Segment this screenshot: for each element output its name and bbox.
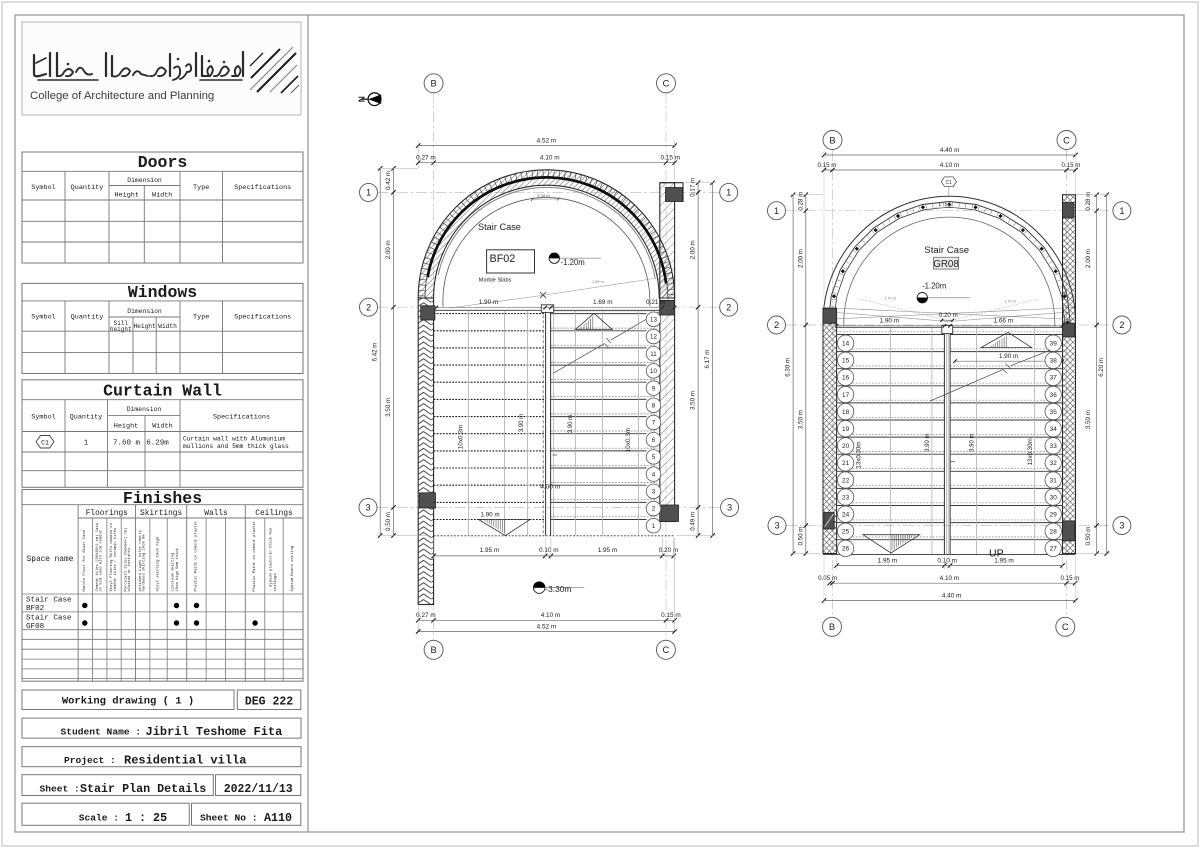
svg-text:0.42 m: 0.42 m <box>385 171 392 190</box>
svg-text:C: C <box>663 644 670 655</box>
svg-text:6.30 m: 6.30 m <box>785 358 792 377</box>
svg-text:Height: Height <box>114 192 138 200</box>
svg-text:37: 37 <box>1050 375 1058 382</box>
svg-text:Stair Case: Stair Case <box>478 222 521 232</box>
svg-text:on 5cm sand with 1cm cement: on 5cm sand with 1cm cement <box>99 530 104 592</box>
svg-text:6.17 m: 6.17 m <box>704 350 711 369</box>
svg-text:-1.20m: -1.20m <box>561 258 585 267</box>
svg-text:Plastic Paint on cement plaste: Plastic Paint on cement plaster <box>252 521 257 592</box>
svg-text:4.10 m: 4.10 m <box>541 612 561 619</box>
svg-text:3.90 m: 3.90 m <box>925 434 931 452</box>
svg-text:3: 3 <box>1119 521 1124 531</box>
svg-text:2: 2 <box>652 506 656 513</box>
svg-text:0.21 m: 0.21 m <box>646 299 666 306</box>
svg-text:0.10 m: 0.10 m <box>937 557 957 564</box>
svg-text:0.15 m: 0.15 m <box>1061 575 1080 582</box>
svg-text:3.90 m: 3.90 m <box>519 414 525 432</box>
svg-text:4.40 m: 4.40 m <box>940 147 960 154</box>
svg-text:3.50 m: 3.50 m <box>1085 410 1092 429</box>
svg-text:4.40 m: 4.40 m <box>942 592 962 599</box>
svg-text:B: B <box>430 78 436 89</box>
svg-text:4.10 m: 4.10 m <box>540 155 560 162</box>
svg-text:-1.20m: -1.20m <box>922 282 946 291</box>
svg-text:Quantity: Quantity <box>71 314 104 322</box>
svg-text:1.70 m: 1.70 m <box>884 297 896 301</box>
svg-text:Curtain wall with Alumunium: Curtain wall with Alumunium <box>183 436 285 443</box>
svg-text:0.10 m: 0.10 m <box>539 547 559 554</box>
svg-text:C: C <box>1062 621 1069 632</box>
svg-text:BF02: BF02 <box>490 253 516 265</box>
svg-text:1: 1 <box>84 440 89 448</box>
svg-text:1.90 m: 1.90 m <box>999 353 1019 360</box>
svg-text:-3.30m: -3.30m <box>545 584 571 594</box>
svg-text:Floorings: Floorings <box>86 510 128 518</box>
svg-text:ceilings: ceilings <box>273 573 278 591</box>
svg-text:32: 32 <box>1050 460 1058 467</box>
svg-text:Skirtings: Skirtings <box>140 510 182 518</box>
svg-text:C1: C1 <box>41 439 49 446</box>
svg-text:2.00 m: 2.00 m <box>690 240 697 259</box>
svg-text:13x0.30m: 13x0.30m <box>855 441 862 468</box>
svg-text:Stair Case: Stair Case <box>26 615 72 623</box>
svg-text:Specifications: Specifications <box>213 414 270 422</box>
svg-text:1.66 m: 1.66 m <box>994 318 1014 325</box>
svg-text:3.34 m: 3.34 m <box>537 194 550 199</box>
svg-text:3.50 m: 3.50 m <box>385 398 392 417</box>
svg-text:3.50 m: 3.50 m <box>797 410 804 429</box>
svg-text:Type: Type <box>193 184 209 192</box>
svg-text:blasted or textured.: blasted or textured. <box>127 546 132 592</box>
svg-text:15: 15 <box>842 358 850 365</box>
svg-text:19: 19 <box>842 426 850 433</box>
svg-text:Dimension: Dimension <box>127 308 162 315</box>
svg-text:DEG 222: DEG 222 <box>245 696 293 709</box>
svg-text:16: 16 <box>842 375 850 382</box>
svg-text:Sheet No :: Sheet No : <box>200 813 258 824</box>
svg-text:2022/11/13: 2022/11/13 <box>224 783 293 796</box>
svg-text:0.49 m: 0.49 m <box>690 512 697 531</box>
svg-text:Height: Height <box>114 423 138 431</box>
svg-text:Ceilings: Ceilings <box>255 510 293 518</box>
svg-text:Quantity: Quantity <box>71 184 104 192</box>
svg-text:29: 29 <box>1050 512 1058 519</box>
svg-text:Walls: Walls <box>204 510 228 518</box>
svg-text:0.50 m: 0.50 m <box>385 512 392 531</box>
svg-text:Dimension: Dimension <box>127 406 162 413</box>
svg-text:4.52 m: 4.52 m <box>537 623 557 630</box>
svg-text:Width: Width <box>152 423 172 431</box>
svg-text:4.10 m: 4.10 m <box>940 162 960 169</box>
svg-text:Height: Height <box>133 323 156 330</box>
svg-text:Residential villa: Residential villa <box>124 753 246 767</box>
svg-text:0.15 m: 0.15 m <box>661 612 681 619</box>
svg-text:Jibril Teshome Fita: Jibril Teshome Fita <box>146 725 283 739</box>
svg-text:1.90 m: 1.90 m <box>480 512 499 519</box>
svg-text:Student Name :: Student Name : <box>61 726 142 737</box>
svg-text:mullions and 5mm thick glass: mullions and 5mm thick glass <box>183 443 289 450</box>
svg-text:Scale :: Scale : <box>79 813 119 824</box>
svg-text:1.95 m: 1.95 m <box>878 557 898 564</box>
svg-text:cement tiles / ceramic tiles: cement tiles / ceramic tiles <box>113 528 118 592</box>
svg-text:hardwood skirting 10cm mm: hardwood skirting 10cm mm <box>142 534 147 592</box>
svg-text:1: 1 <box>726 188 731 198</box>
svg-text:21: 21 <box>842 460 850 467</box>
svg-text:0.15 m: 0.15 m <box>1062 162 1081 169</box>
svg-text:Width: Width <box>158 323 177 330</box>
svg-text:6.20 m: 6.20 m <box>1098 358 1105 377</box>
svg-text:12: 12 <box>650 334 657 341</box>
svg-text:2: 2 <box>1119 320 1124 330</box>
svg-text:28: 28 <box>1050 529 1058 536</box>
svg-text:2: 2 <box>726 302 731 312</box>
svg-text:0.50 m: 0.50 m <box>797 527 804 546</box>
svg-text:Quantity: Quantity <box>70 414 103 422</box>
svg-text:1.95 m: 1.95 m <box>480 547 500 554</box>
svg-text:1: 1 <box>652 523 656 530</box>
svg-text:4.52 m: 4.52 m <box>537 138 557 145</box>
svg-text:35: 35 <box>1050 409 1058 416</box>
svg-text:18: 18 <box>842 409 850 416</box>
svg-text:10x0.3m: 10x0.3m <box>625 428 632 453</box>
svg-text:4.00 m: 4.00 m <box>540 484 561 491</box>
svg-text:Symbol: Symbol <box>31 414 55 422</box>
svg-text:10cm high 5mm thick: 10cm high 5mm thick <box>175 547 180 591</box>
svg-text:3.50 m: 3.50 m <box>690 391 697 410</box>
svg-text:1 : 25: 1 : 25 <box>125 811 167 825</box>
svg-text:27: 27 <box>1050 546 1058 553</box>
svg-text:38: 38 <box>1050 358 1058 365</box>
svg-text:1.73 m: 1.73 m <box>939 202 952 207</box>
svg-text:Working drawing ( 1 ): Working drawing ( 1 ) <box>62 696 194 708</box>
svg-text:39: 39 <box>1050 341 1058 348</box>
svg-text:0.20 m: 0.20 m <box>659 547 679 554</box>
svg-text:C: C <box>663 78 670 89</box>
svg-text:34: 34 <box>1050 426 1058 433</box>
svg-text:23: 23 <box>842 494 850 501</box>
svg-text:Linoleum skirting: Linoleum skirting <box>171 553 176 592</box>
svg-text:Symbol: Symbol <box>31 184 55 192</box>
svg-text:3: 3 <box>652 489 656 496</box>
svg-text:10: 10 <box>650 368 657 375</box>
svg-text:33: 33 <box>1050 443 1058 450</box>
svg-text:2.00 m: 2.00 m <box>797 249 804 268</box>
svg-text:2.00 m: 2.00 m <box>385 240 392 259</box>
svg-text:22: 22 <box>842 477 850 484</box>
svg-text:1.95 m: 1.95 m <box>598 547 618 554</box>
svg-text:1.85 m: 1.85 m <box>592 280 604 284</box>
svg-text:Specifications: Specifications <box>234 314 291 322</box>
svg-text:1.90 m: 1.90 m <box>880 318 900 325</box>
svg-text:Stair Plan Details: Stair Plan Details <box>80 782 206 796</box>
svg-text:3: 3 <box>774 521 779 531</box>
svg-text:3: 3 <box>365 503 370 513</box>
svg-text:A110: A110 <box>264 811 292 825</box>
svg-text:31: 31 <box>1050 477 1058 484</box>
svg-text:14: 14 <box>842 341 850 348</box>
svg-text:5: 5 <box>652 454 656 461</box>
svg-text:0.15 m: 0.15 m <box>661 155 681 162</box>
svg-text:13x0.30m: 13x0.30m <box>1027 438 1034 465</box>
svg-text:6: 6 <box>652 437 656 444</box>
svg-text:1: 1 <box>366 188 371 198</box>
svg-text:Doors: Doors <box>138 153 188 172</box>
svg-text:Sheet :: Sheet : <box>40 784 80 795</box>
svg-text:6.42 m: 6.42 m <box>372 343 379 362</box>
svg-text:0.20 m: 0.20 m <box>939 312 958 319</box>
svg-text:2: 2 <box>366 302 371 312</box>
svg-text:GR08: GR08 <box>933 259 959 270</box>
svg-text:36: 36 <box>1050 392 1058 399</box>
svg-text:10x0.3m: 10x0.3m <box>458 425 465 450</box>
svg-text:25: 25 <box>842 529 850 536</box>
svg-text:Type: Type <box>193 314 209 322</box>
svg-text:1.69 m: 1.69 m <box>593 299 613 306</box>
svg-text:7: 7 <box>652 420 656 427</box>
svg-text:9: 9 <box>652 385 656 392</box>
svg-text:Curtain Wall: Curtain Wall <box>103 382 222 401</box>
svg-text:Gypsum Board ceiling: Gypsum Board ceiling <box>290 546 295 592</box>
svg-text:B: B <box>829 621 835 632</box>
svg-text:6.29m: 6.29m <box>146 440 169 448</box>
svg-text:4: 4 <box>652 471 656 478</box>
svg-text:Marble Slabs: Marble Slabs <box>479 278 512 284</box>
svg-text:8: 8 <box>652 403 656 410</box>
svg-text:13: 13 <box>650 317 657 324</box>
svg-text:3.90 m: 3.90 m <box>969 434 975 452</box>
svg-text:College of Architecture and Pl: College of Architecture and Planning <box>30 90 214 102</box>
svg-text:0.15 m: 0.15 m <box>818 162 837 169</box>
svg-text:BF02: BF02 <box>26 605 45 613</box>
svg-text:- Gypsum plasterin thick 4un: - Gypsum plasterin thick 4un <box>269 528 274 592</box>
svg-text:1.70 m: 1.70 m <box>1004 300 1016 304</box>
svg-text:Space name: Space name <box>27 556 74 564</box>
svg-text:C1: C1 <box>946 180 953 186</box>
svg-text:C: C <box>1063 134 1070 145</box>
svg-text:Width: Width <box>152 192 172 200</box>
svg-text:1: 1 <box>1119 206 1124 216</box>
svg-text:20: 20 <box>842 443 850 450</box>
svg-text:4.10 m: 4.10 m <box>940 575 960 582</box>
svg-text:Stair Case: Stair Case <box>26 597 72 605</box>
svg-text:1: 1 <box>774 206 779 216</box>
svg-text:B: B <box>430 644 436 655</box>
svg-text:7.60 m: 7.60 m <box>113 440 141 448</box>
svg-text:Stair Case: Stair Case <box>924 245 969 256</box>
svg-text:3.90 m: 3.90 m <box>568 415 574 433</box>
svg-text:11: 11 <box>650 351 657 358</box>
svg-text:Vinyl skirting 10cm high: Vinyl skirting 10cm high <box>156 537 161 592</box>
svg-text:2: 2 <box>774 320 779 330</box>
svg-text:0.05 m: 0.05 m <box>818 575 837 582</box>
svg-text:1.95 m: 1.95 m <box>994 557 1014 564</box>
svg-text:0.17 m: 0.17 m <box>690 178 697 197</box>
svg-text:3: 3 <box>727 503 732 513</box>
svg-text:0.27 m: 0.27 m <box>416 155 436 162</box>
svg-text:Project :: Project : <box>64 755 116 766</box>
svg-text:height: height <box>110 326 132 333</box>
svg-text:2.00 m: 2.00 m <box>1085 249 1092 268</box>
svg-text:N: N <box>357 96 367 102</box>
svg-text:Dimension: Dimension <box>127 177 162 184</box>
svg-text:0.27 m: 0.27 m <box>416 612 436 619</box>
svg-text:0.50 m: 0.50 m <box>1085 527 1092 546</box>
svg-text:Plastic Paint on cement plaste: Plastic Paint on cement plaster <box>194 521 199 592</box>
svg-text:30: 30 <box>1050 494 1058 501</box>
svg-text:Windows: Windows <box>128 283 197 302</box>
svg-text:Finishes: Finishes <box>123 489 202 508</box>
svg-text:GF08: GF08 <box>26 623 45 631</box>
svg-text:26: 26 <box>842 546 850 553</box>
svg-text:Specifications: Specifications <box>234 184 291 192</box>
svg-text:Symbol: Symbol <box>31 314 55 322</box>
svg-text:Marble Floor for Stair Case: Marble Floor for Stair Case <box>82 529 87 591</box>
svg-text:17: 17 <box>842 392 850 399</box>
svg-text:B: B <box>829 134 835 145</box>
svg-text:1.90 m: 1.90 m <box>479 299 499 306</box>
svg-text:24: 24 <box>842 512 850 519</box>
